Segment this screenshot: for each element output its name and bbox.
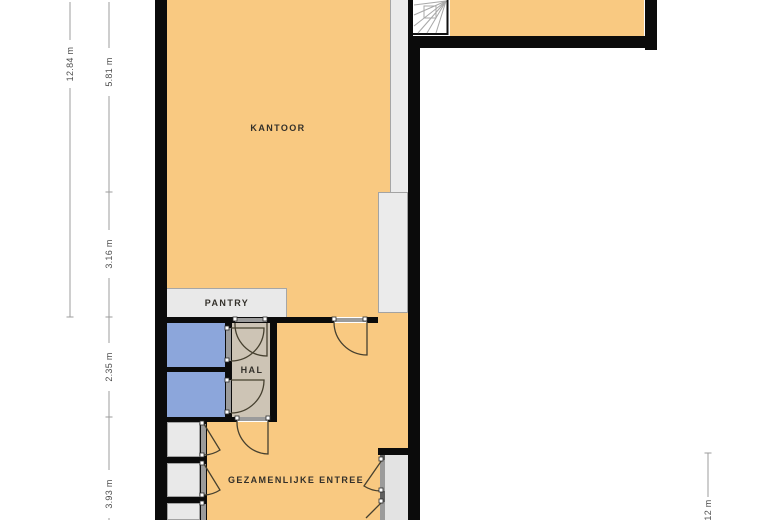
door-office-corridor: [332, 317, 367, 355]
dimension-label-total-height: 12.84 m: [64, 29, 76, 99]
dimension-label-office-lower: 3.16 m: [103, 219, 115, 289]
room-label-pantry: PANTRY: [205, 298, 249, 308]
dimension-label-office-upper: 5.81 m: [103, 37, 115, 107]
door-entrance-right1: [364, 457, 385, 492]
door-closet1: [200, 421, 220, 457]
room-label-hall: HAL: [241, 365, 264, 375]
door-toilet2: [225, 378, 264, 414]
staircase: [413, 0, 448, 35]
door-closet2: [200, 461, 220, 497]
room-label-office: KANTOOR: [250, 123, 305, 133]
room-label-entrance: GEZAMENLIJKE ENTREE: [228, 475, 364, 485]
door-toilet1: [225, 326, 264, 362]
door-entrance-right2: [366, 499, 385, 520]
door-closet3: [200, 501, 206, 520]
floorplan-canvas: KANTOOR PANTRY HAL GEZAMENLIJKE ENTREE 1…: [0, 0, 780, 520]
door-hall-top: [233, 317, 267, 356]
dimension-label-entrance-section: 3.93 m: [103, 459, 115, 520]
door-hall-bottom: [235, 416, 270, 454]
dimension-label-right: 12 m: [702, 475, 714, 520]
dimension-label-hall-section: 2.35 m: [103, 332, 115, 402]
plan-symbols-layer: [0, 0, 780, 520]
dimension-lines: [67, 2, 712, 520]
